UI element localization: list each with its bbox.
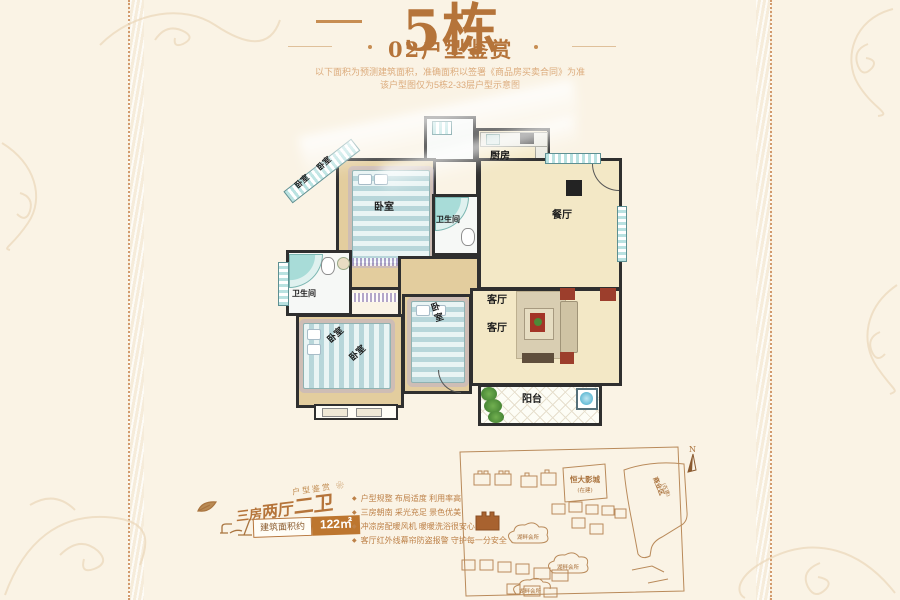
kitchen-sink-icon	[486, 134, 500, 145]
shower-1-icon	[435, 197, 469, 231]
label-dining: 餐厅	[552, 206, 572, 221]
clubhouse-label-3: 湖畔会所	[519, 587, 542, 595]
table-plant-icon	[534, 318, 542, 326]
highlighted-building-5	[476, 512, 499, 530]
kitchen-counter	[480, 132, 548, 147]
light-streak	[298, 79, 581, 182]
bay-window-pane	[356, 408, 382, 417]
label-bedroom-2-rot: 卧室	[346, 342, 368, 364]
bay-window-pane	[322, 408, 348, 417]
dining-right-window	[617, 206, 627, 262]
clubhouse-label-2: 湖畔会所	[557, 563, 580, 571]
pillow	[374, 174, 388, 185]
subtitle-right-dot	[534, 45, 538, 49]
title-dash	[316, 20, 362, 23]
fridge-icon	[566, 180, 582, 196]
label-bedroom-2: 卧室	[324, 324, 346, 346]
table-runner	[530, 313, 545, 332]
toilet-1-icon	[461, 228, 475, 246]
armchair-icon	[560, 352, 574, 364]
balcony-plant-icon	[481, 387, 497, 401]
label-balcony: 阳台	[522, 390, 542, 405]
closet-band	[330, 293, 402, 302]
disclaimer-line-2: 该户型图仅为5栋2-33层户型示意图	[200, 79, 700, 91]
pillow	[432, 305, 446, 316]
flourish-top-left-icon	[95, 0, 285, 58]
toilet-2-icon	[321, 257, 335, 275]
stove-icon	[520, 133, 534, 144]
subtitle-left-dot	[368, 45, 372, 49]
sofa-icon	[560, 301, 578, 353]
armchair-icon	[560, 288, 575, 300]
bed1-blanket-band	[352, 258, 428, 266]
pillow	[307, 344, 321, 355]
room-bathroom-1	[432, 194, 480, 256]
room-bedroom-2	[296, 314, 404, 408]
label-living: 客厅	[487, 291, 507, 306]
room-bathroom-2	[286, 250, 352, 316]
coffee-table-icon	[524, 308, 554, 340]
flourish-right-icon	[845, 282, 900, 397]
bathroom2-window	[278, 262, 289, 306]
area-label: 建筑面积约	[253, 517, 313, 538]
washer-drum	[580, 392, 593, 405]
room-bedroom-3	[402, 294, 472, 394]
label-bedroom-1-rot: 卧室	[292, 172, 311, 191]
label-bedroom-1: 卧室	[374, 198, 394, 213]
bed-2	[303, 323, 391, 389]
flourish-top-right-icon	[798, 4, 898, 119]
dining-top-window	[545, 153, 601, 164]
basin-icon	[337, 257, 350, 270]
balcony-plant-icon	[488, 411, 504, 423]
clubhouse-label-1: 湖畔会所	[517, 533, 540, 541]
flourish-bottom-right-icon	[730, 508, 900, 600]
pillow	[307, 329, 321, 340]
subtitle-left-line	[288, 46, 332, 47]
room-dining	[478, 158, 622, 290]
flourish-bottom-left-icon	[0, 445, 155, 600]
unit-subtitle: 02户型鉴赏	[388, 34, 513, 64]
north-arrow-icon: N	[688, 445, 696, 472]
bed-3	[411, 301, 465, 383]
pillow	[358, 174, 372, 185]
entry-door-arc	[592, 164, 619, 191]
living-rug	[516, 291, 566, 359]
label-kitchen: 厨房	[490, 147, 510, 162]
bedroom1-door-arc	[408, 266, 431, 289]
room-utility	[424, 116, 476, 162]
light-streak	[380, 115, 581, 196]
label-bedroom-3: 卧室	[427, 301, 446, 326]
leaf-icon	[196, 499, 218, 513]
area-box: 建筑面积约 122㎡	[253, 515, 361, 538]
poster-page: 5栋 02户型鉴赏 以下面积为预测建筑面积，准确面积以签署《商品房买卖合同》为准…	[0, 0, 900, 600]
subtitle-right-line	[572, 46, 616, 47]
bay-window-diagonal	[283, 139, 360, 204]
label-bedroom-1-rot: 卧室	[314, 154, 333, 173]
site-map: N 恒大影城 (在建) 商业区 (在建) 湖畔会所 湖畔会所 湖畔会所	[452, 442, 720, 600]
disclaimer-line-1: 以下面积为预测建筑面积，准确面积以签署《商品房买卖合同》为准	[200, 66, 700, 78]
room-kitchen	[476, 128, 550, 198]
label-bathroom-1: 卫生间	[436, 214, 460, 225]
hallway	[398, 256, 480, 332]
north-label: N	[689, 445, 696, 454]
room-living	[470, 288, 622, 386]
bedroom3-door-arc	[438, 370, 461, 393]
armchair-icon	[600, 288, 616, 301]
pillow	[416, 305, 430, 316]
layout-part3: 二卫	[294, 490, 334, 519]
tv-cabinet-icon	[522, 353, 554, 363]
washer-icon	[576, 388, 598, 410]
room-bedroom-1	[336, 158, 436, 290]
cinema-status: (在建)	[577, 486, 592, 494]
label-living-2: 客厅	[487, 319, 507, 334]
bed-1	[352, 170, 430, 264]
utility-washbasin	[432, 121, 452, 135]
room-balcony	[478, 384, 602, 426]
label-bathroom-2: 卫生间	[292, 288, 316, 299]
kitchen-side-counter	[535, 146, 548, 186]
sofa-sketch-icon	[216, 515, 254, 539]
balcony-plant-icon	[484, 399, 502, 413]
flourish-left-icon	[0, 138, 58, 253]
shower-2-icon	[289, 254, 323, 288]
bay-window-seat	[314, 404, 398, 420]
cinema-label: 恒大影城	[570, 474, 600, 484]
